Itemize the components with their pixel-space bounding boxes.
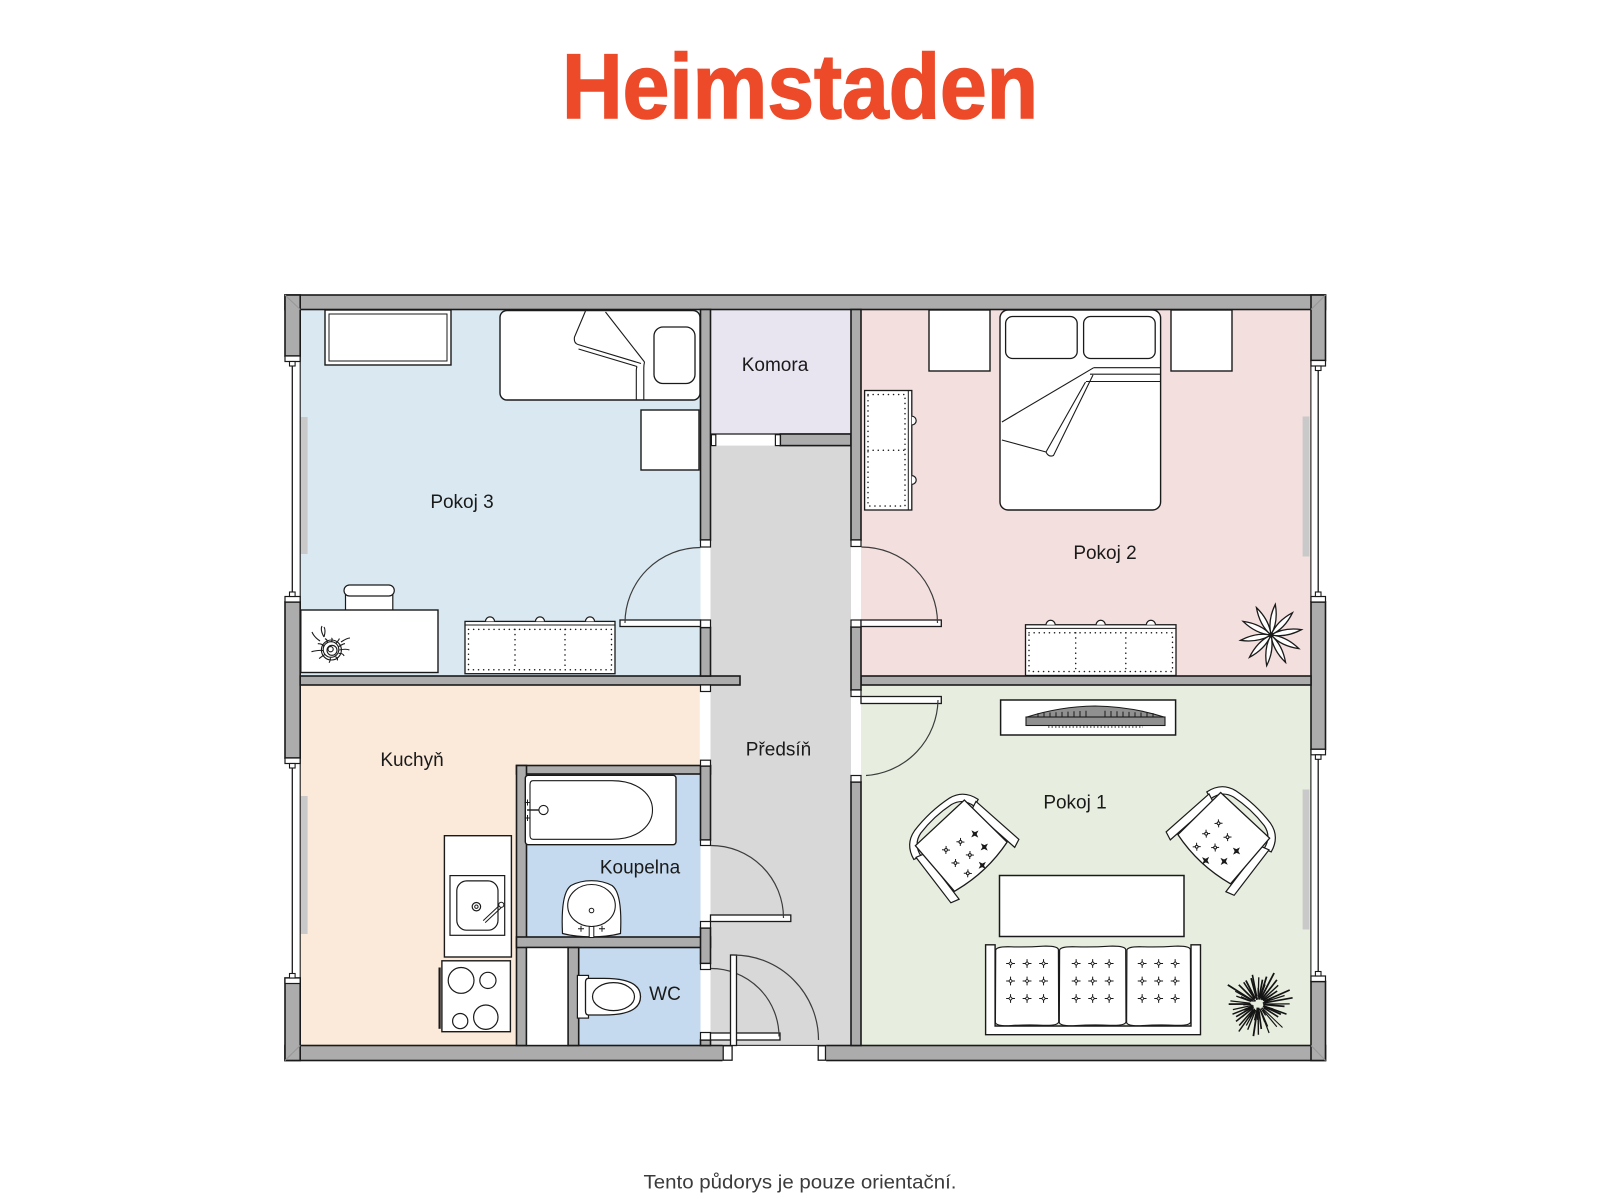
svg-text:Předsíň: Předsíň xyxy=(746,740,811,761)
svg-text:Pokoj 2: Pokoj 2 xyxy=(1073,543,1136,564)
svg-text:WC: WC xyxy=(649,984,681,1005)
svg-text:Heimstaden: Heimstaden xyxy=(562,36,1038,138)
svg-text:Komora: Komora xyxy=(742,355,809,376)
svg-text:Kuchyň: Kuchyň xyxy=(380,750,443,771)
svg-text:Pokoj 1: Pokoj 1 xyxy=(1043,793,1106,814)
svg-text:Pokoj 3: Pokoj 3 xyxy=(430,492,493,513)
svg-text:Koupelna: Koupelna xyxy=(600,858,681,879)
svg-text:Tento půdorys je pouze orienta: Tento půdorys je pouze orientační. xyxy=(644,1172,957,1194)
